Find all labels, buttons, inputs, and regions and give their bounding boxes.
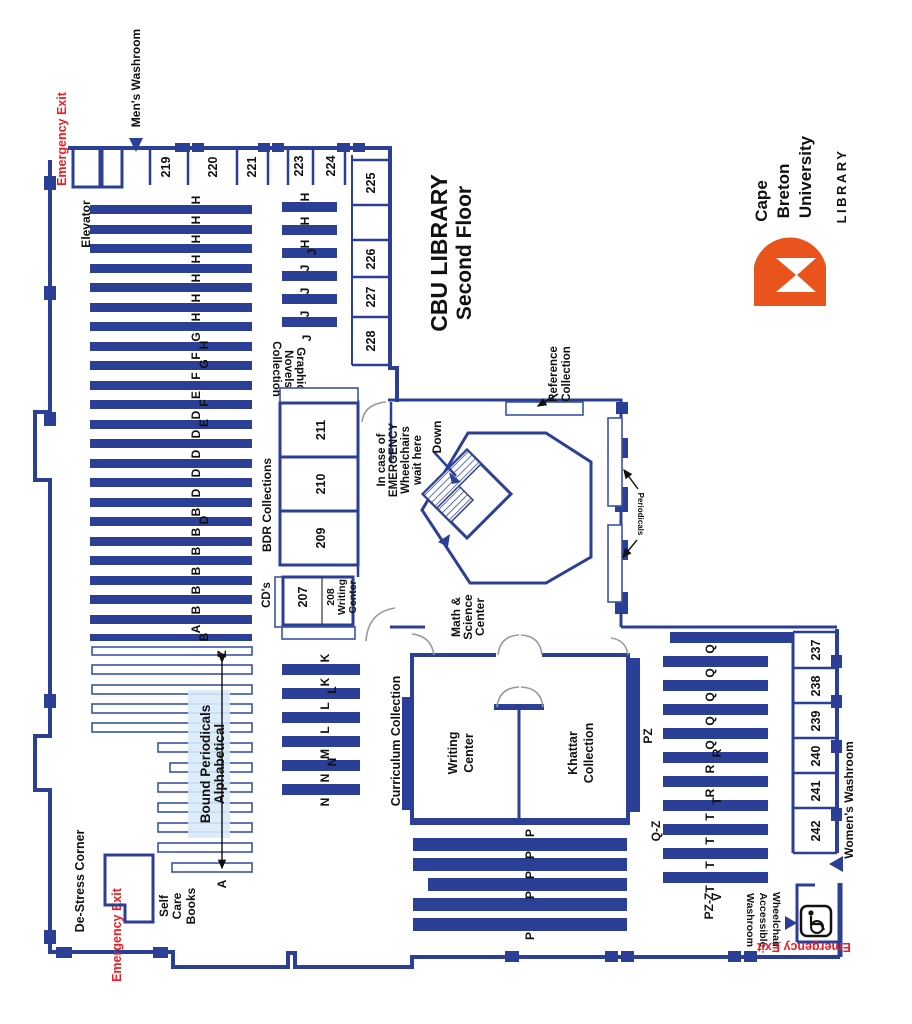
svg-text:B: B xyxy=(189,605,203,614)
svg-text:F: F xyxy=(189,352,203,359)
mens-washroom-label: Men's Washroom xyxy=(129,29,143,127)
bdr-label: BDR Collections xyxy=(260,458,274,552)
cbu-logo: Cape Breton University LIBRARY xyxy=(752,135,849,306)
room-225: 225 xyxy=(364,173,378,194)
logo-l1: Cape xyxy=(752,180,771,222)
svg-text:D: D xyxy=(189,468,203,477)
room-208-l3: Center xyxy=(347,580,359,613)
wait-l3: Wheelchairs xyxy=(400,426,412,494)
room-239: 239 xyxy=(809,711,823,732)
svg-text:R: R xyxy=(710,748,724,757)
writing-l1: Writing xyxy=(446,732,460,775)
gn-line1: Graphic xyxy=(294,347,306,391)
wait-l1: In case of xyxy=(376,433,388,486)
khattar-l1: Khattar xyxy=(566,731,580,775)
svg-text:H: H xyxy=(189,313,203,322)
svg-text:D: D xyxy=(197,515,211,524)
title-line2: Second Floor xyxy=(453,186,476,320)
bp-z: Z xyxy=(215,650,229,657)
svg-text:D: D xyxy=(189,429,203,438)
svg-text:A: A xyxy=(189,624,203,633)
self-care-l1: Self xyxy=(157,894,171,917)
gn-line2: Novels xyxy=(282,350,294,388)
svg-text:J: J xyxy=(305,249,319,256)
room-237: 237 xyxy=(809,640,823,661)
room-227: 227 xyxy=(364,287,378,308)
svg-text:F: F xyxy=(189,372,203,379)
main-stack-letters: H H H H H H H G H F G F E F D E D D D D … xyxy=(189,196,211,642)
de-stress-label: De-Stress Corner xyxy=(73,829,87,932)
svg-text:L: L xyxy=(318,726,332,733)
svg-text:H: H xyxy=(298,193,312,202)
svg-text:T: T xyxy=(703,861,717,869)
logo-l3: University xyxy=(796,135,815,218)
svg-text:R: R xyxy=(703,764,717,773)
bound-periodicals: Bound Periodicals Alphabetical Z A xyxy=(92,647,252,888)
svg-text:B: B xyxy=(189,527,203,536)
svg-text:Q: Q xyxy=(703,644,717,653)
room-209: 209 xyxy=(314,528,328,549)
room-210: 210 xyxy=(314,474,328,495)
pz-shelf xyxy=(628,658,640,812)
room-240: 240 xyxy=(809,746,823,767)
svg-text:G: G xyxy=(189,332,203,341)
svg-text:T: T xyxy=(703,813,717,821)
svg-text:Q: Q xyxy=(703,668,717,677)
svg-text:D: D xyxy=(189,410,203,419)
logo-l2: Breton xyxy=(774,164,793,219)
pzz-label: PZ-Z xyxy=(702,893,716,920)
bp-label-1: Bound Periodicals xyxy=(198,705,213,824)
svg-text:J: J xyxy=(300,335,314,342)
room-224: 224 xyxy=(324,156,338,177)
logo-unit: LIBRARY xyxy=(834,149,849,224)
svg-text:K: K xyxy=(318,653,332,662)
map-title: CBU LIBRARY Second Floor xyxy=(426,174,476,332)
curriculum-label: Curriculum Collection xyxy=(389,676,403,807)
cbu-logo-icon xyxy=(754,238,826,306)
room-228: 228 xyxy=(364,331,378,352)
bp-a: A xyxy=(215,879,229,888)
k-stacks: K K L L L M N N N xyxy=(282,653,360,806)
room-211: 211 xyxy=(314,420,328,440)
self-care-l2: Care xyxy=(170,892,184,919)
reference-shelf xyxy=(506,402,583,415)
svg-text:Q: Q xyxy=(703,716,717,725)
emergency-exit-bottom-right: Emergency Exit xyxy=(756,940,851,954)
wc-l3: Washroom xyxy=(744,893,756,947)
svg-text:K: K xyxy=(318,677,332,686)
svg-text:P: P xyxy=(523,851,537,859)
writing-l2: Center xyxy=(462,733,476,773)
svg-text:H: H xyxy=(197,341,211,350)
title-line1: CBU LIBRARY xyxy=(426,174,452,332)
womens-washroom-arrow xyxy=(829,856,843,872)
cds-label: CD's xyxy=(261,582,273,608)
svg-text:P: P xyxy=(523,871,537,879)
room-226: 226 xyxy=(364,249,378,270)
svg-text:B: B xyxy=(189,585,203,594)
p-stacks: P P P P P xyxy=(413,829,627,940)
svg-text:E: E xyxy=(189,391,203,399)
wc-l1: Wheelchair xyxy=(770,892,782,948)
svg-text:N: N xyxy=(318,774,332,783)
svg-text:B: B xyxy=(189,507,203,516)
room-242: 242 xyxy=(809,821,823,842)
svg-text:B: B xyxy=(197,632,211,641)
down-label: Down xyxy=(430,421,444,454)
svg-text:H: H xyxy=(189,196,203,205)
svg-text:T: T xyxy=(703,837,717,845)
svg-text:D: D xyxy=(189,488,203,497)
main-stacks: H H H H H H H G H F G F E F D E D D D D … xyxy=(90,196,252,642)
svg-text:D: D xyxy=(189,449,203,458)
svg-text:H: H xyxy=(298,240,312,249)
svg-text:H: H xyxy=(298,217,312,226)
svg-text:P: P xyxy=(523,891,537,899)
svg-text:H: H xyxy=(189,235,203,244)
svg-text:P: P xyxy=(523,829,537,837)
khattar-l2: Collection xyxy=(582,723,596,783)
svg-text:B: B xyxy=(189,566,203,575)
periodicals-shelf-1 xyxy=(608,418,622,506)
svg-text:L: L xyxy=(318,702,332,709)
room-223: 223 xyxy=(292,156,306,177)
svg-text:J: J xyxy=(298,265,312,272)
svg-text:N: N xyxy=(325,758,339,767)
room-241: 241 xyxy=(809,781,823,802)
svg-text:T: T xyxy=(710,797,724,805)
reference-l2: Collection xyxy=(561,346,573,402)
svg-text:Q: Q xyxy=(703,692,717,701)
room-221: 221 xyxy=(245,157,259,178)
j-stacks: H H H J J J J J xyxy=(282,193,337,342)
reference-l1: Reference xyxy=(548,346,560,402)
room-220: 220 xyxy=(206,157,220,178)
svg-text:P: P xyxy=(523,932,537,940)
qz-label: Q-Z xyxy=(649,821,663,842)
svg-text:H: H xyxy=(189,294,203,303)
svg-text:R: R xyxy=(703,788,717,797)
svg-text:E: E xyxy=(197,419,211,427)
side-rooms: 225 226 227 228 xyxy=(352,155,390,365)
emergency-exit-top-left: Emergency Exit xyxy=(55,91,69,186)
room-219: 219 xyxy=(159,157,173,178)
periodicals-shelf-2 xyxy=(608,525,622,602)
wait-l2: EMERGENCY xyxy=(388,423,400,497)
svg-text:T: T xyxy=(703,885,717,893)
svg-text:F: F xyxy=(197,399,211,406)
wc-l2: Accessible xyxy=(757,893,769,948)
svg-text:M: M xyxy=(318,749,332,759)
math-l3: Center xyxy=(473,598,487,636)
svg-text:Q: Q xyxy=(703,740,717,749)
stair-lobby: Down Reference Collection Periodicals In… xyxy=(376,346,645,602)
bp-label-2: Alphabetical xyxy=(212,724,227,804)
pz-label: PZ xyxy=(641,728,655,743)
wheelchair-washroom-arrow xyxy=(785,916,797,930)
svg-text:B: B xyxy=(189,546,203,555)
womens-washroom-label: Women's Washroom xyxy=(842,741,856,859)
room-207: 207 xyxy=(296,587,310,608)
svg-text:H: H xyxy=(189,274,203,283)
svg-text:G: G xyxy=(197,359,211,368)
library-floorplan: 219 220 221 223 224 Elevator 225 226 227… xyxy=(0,0,912,1024)
svg-text:H: H xyxy=(189,216,203,225)
svg-text:L: L xyxy=(325,686,339,693)
svg-text:H: H xyxy=(189,255,203,264)
svg-text:J: J xyxy=(298,311,312,318)
q-stacks: Q Q Q Q Q R R R T T T T T V Q-Z PZ-Z 237… xyxy=(649,632,837,919)
emergency-exit-bottom-left: Emergency Exit xyxy=(110,887,124,982)
svg-text:J: J xyxy=(298,288,312,295)
svg-text:N: N xyxy=(318,798,332,807)
self-care-l3: Books xyxy=(184,887,198,924)
floorplan-svg: 219 220 221 223 224 Elevator 225 226 227… xyxy=(0,0,912,1024)
wait-l4: wait here xyxy=(412,435,424,486)
bdr-block: Graphic Novels Collection 211 210 209 BD… xyxy=(260,341,359,639)
room-238: 238 xyxy=(809,676,823,697)
periodicals-label: Periodicals xyxy=(636,493,645,536)
